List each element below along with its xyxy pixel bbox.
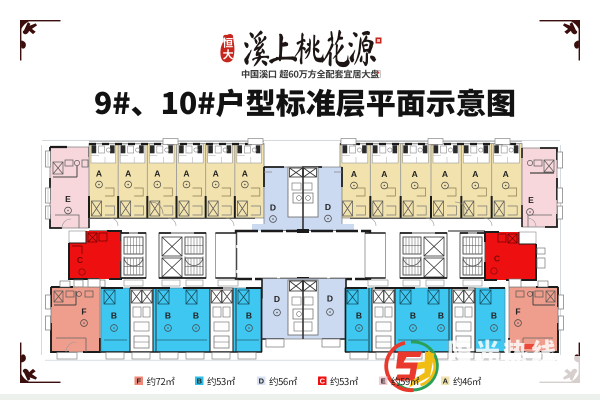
svg-text:F: F (81, 307, 86, 317)
svg-text:F: F (137, 377, 142, 386)
svg-text:B: B (193, 311, 199, 321)
svg-text:D: D (325, 202, 331, 212)
svg-text:A: A (381, 169, 387, 179)
svg-text:B: B (356, 311, 362, 321)
svg-text:C: C (77, 255, 83, 265)
svg-text:A: A (96, 169, 102, 179)
svg-text:E: E (65, 194, 71, 204)
svg-text:F: F (515, 307, 520, 317)
svg-text:D: D (327, 294, 333, 304)
svg-text:C: C (320, 377, 326, 386)
svg-text:A: A (412, 169, 418, 179)
svg-text:B: B (246, 311, 252, 321)
svg-text:B: B (165, 311, 171, 321)
svg-text:A: A (183, 169, 189, 179)
svg-text:A: A (443, 377, 449, 386)
svg-text:A: A (472, 169, 478, 179)
svg-text:B: B (111, 311, 117, 321)
svg-text:A: A (442, 169, 448, 179)
svg-text:C: C (494, 254, 500, 264)
svg-text:D: D (274, 294, 280, 304)
svg-text:A: A (213, 169, 219, 179)
svg-text:E: E (528, 195, 534, 205)
svg-text:B: B (197, 377, 203, 386)
svg-text:A: A (242, 169, 248, 179)
svg-text:A: A (503, 169, 509, 179)
svg-text:D: D (259, 377, 265, 386)
svg-text:E: E (381, 377, 386, 386)
svg-text:A: A (351, 169, 357, 179)
svg-text:A: A (154, 169, 160, 179)
svg-text:A: A (125, 169, 131, 179)
svg-text:B: B (438, 311, 444, 321)
svg-text:B: B (491, 311, 497, 321)
svg-text:B: B (410, 311, 416, 321)
svg-text:D: D (270, 203, 276, 213)
